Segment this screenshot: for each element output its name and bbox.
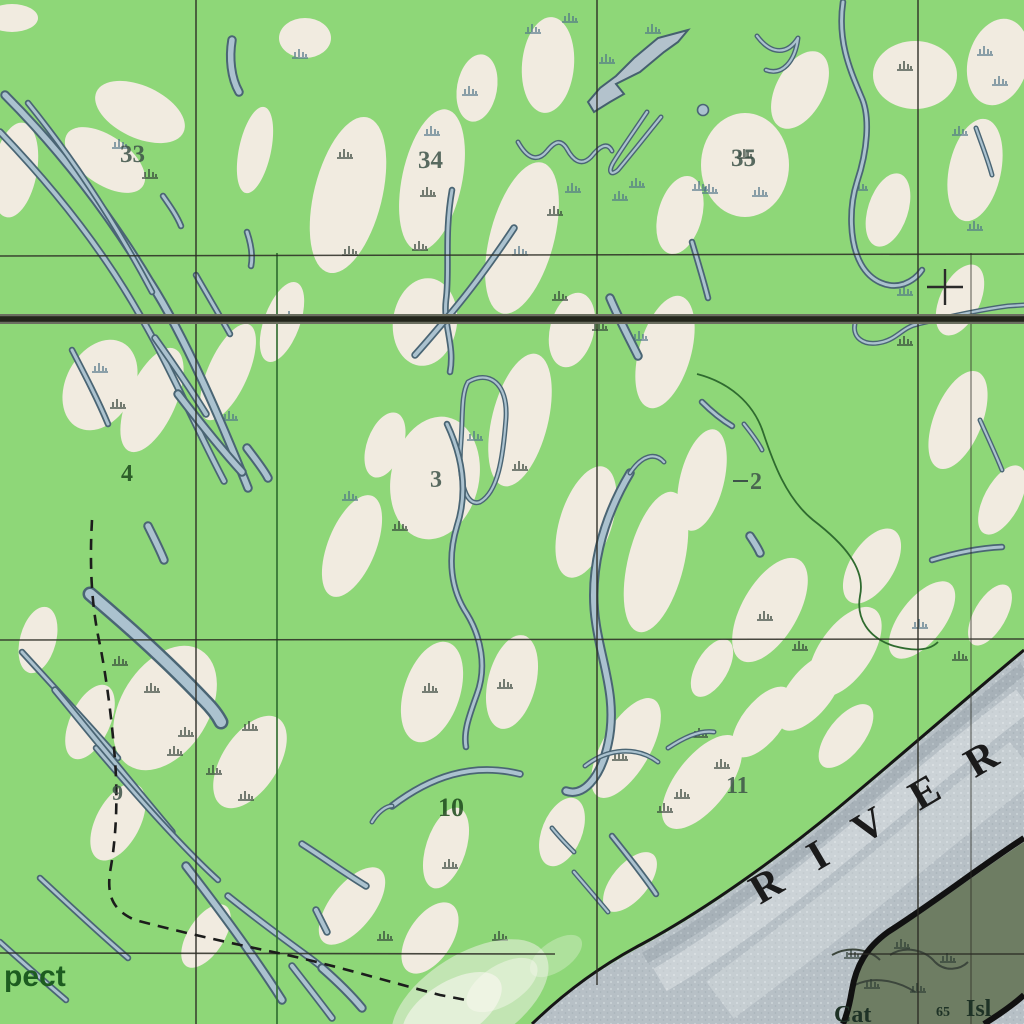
grid-line-horizontal-middle bbox=[0, 639, 1024, 640]
section-number-4: 4 bbox=[121, 461, 133, 487]
section-number-11: 11 bbox=[726, 773, 749, 799]
island-elevation-label: 65 bbox=[936, 1005, 950, 1020]
section-number-34: 34 bbox=[418, 147, 444, 174]
section-number-3: 3 bbox=[430, 467, 442, 493]
island-label-isl: Isl bbox=[966, 996, 992, 1022]
section-number-33: 33 bbox=[120, 141, 145, 168]
section-number-10: 10 bbox=[438, 793, 464, 822]
section-number-9: 9 bbox=[112, 780, 123, 805]
section-number-35: 35 bbox=[731, 145, 756, 172]
place-name-partial: pect bbox=[4, 960, 66, 993]
topographic-map-viewport[interactable]: 33 34 35 4 3 2 9 10 11 R I V E R pect Ca… bbox=[0, 0, 1024, 1024]
island-label-cat: Cat bbox=[834, 1002, 871, 1024]
map-canvas: 33 34 35 4 3 2 9 10 11 R I V E R pect Ca… bbox=[0, 0, 1024, 1024]
section-number-2: 2 bbox=[750, 469, 762, 495]
small-pond bbox=[698, 105, 709, 116]
